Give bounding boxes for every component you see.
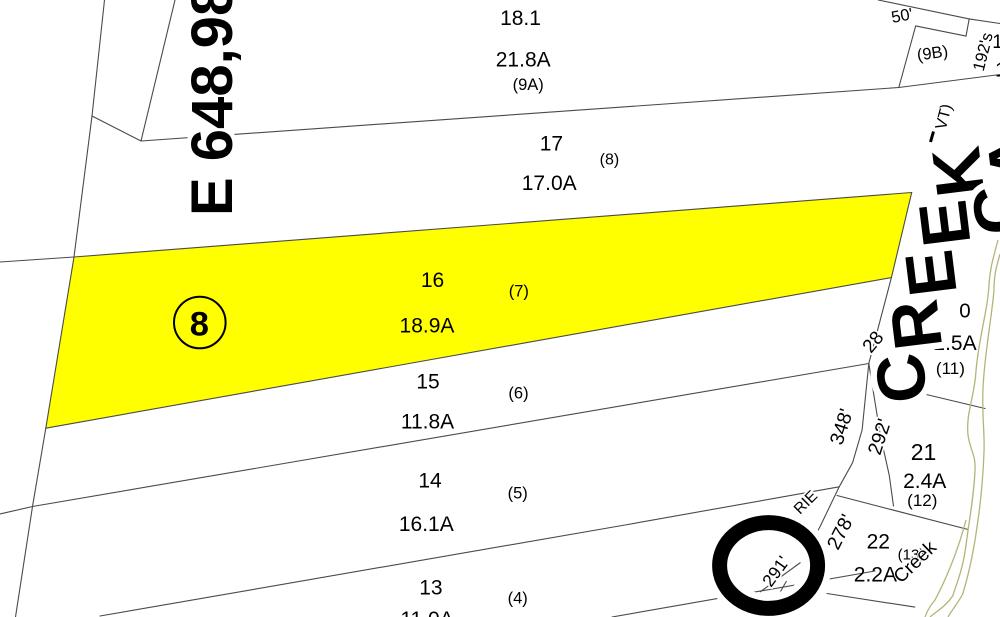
svg-text:21.8A: 21.8A (496, 49, 551, 72)
svg-text:(9A): (9A) (513, 76, 544, 94)
svg-text:(12): (12) (907, 491, 937, 510)
svg-text:(7): (7) (509, 283, 529, 301)
svg-text:0: 0 (959, 299, 970, 322)
svg-text:(4): (4) (508, 589, 528, 607)
svg-text:(6): (6) (508, 385, 528, 403)
svg-text:11.8A: 11.8A (401, 411, 454, 434)
svg-text:18.1: 18.1 (500, 7, 541, 30)
svg-text:16: 16 (421, 269, 444, 292)
svg-text:14: 14 (418, 470, 442, 493)
svg-text:11.0A: 11.0A (400, 608, 453, 617)
svg-text:21: 21 (911, 439, 937, 465)
svg-text:2.4A: 2.4A (903, 470, 946, 493)
svg-text:E 648,980: E 648,980 (180, 0, 245, 216)
svg-text:2.2A: 2.2A (854, 564, 897, 587)
svg-text:13: 13 (419, 577, 442, 600)
svg-text:(8): (8) (600, 151, 620, 168)
svg-text:16.1A: 16.1A (399, 513, 454, 536)
svg-text:18.9A: 18.9A (400, 314, 455, 337)
svg-text:8: 8 (190, 306, 209, 344)
svg-text:22: 22 (867, 530, 890, 553)
svg-text:17: 17 (540, 132, 563, 155)
svg-text:17.0A: 17.0A (522, 172, 577, 195)
svg-text:(5): (5) (508, 484, 528, 502)
svg-text:(11): (11) (936, 359, 965, 378)
svg-text:15: 15 (416, 371, 439, 394)
